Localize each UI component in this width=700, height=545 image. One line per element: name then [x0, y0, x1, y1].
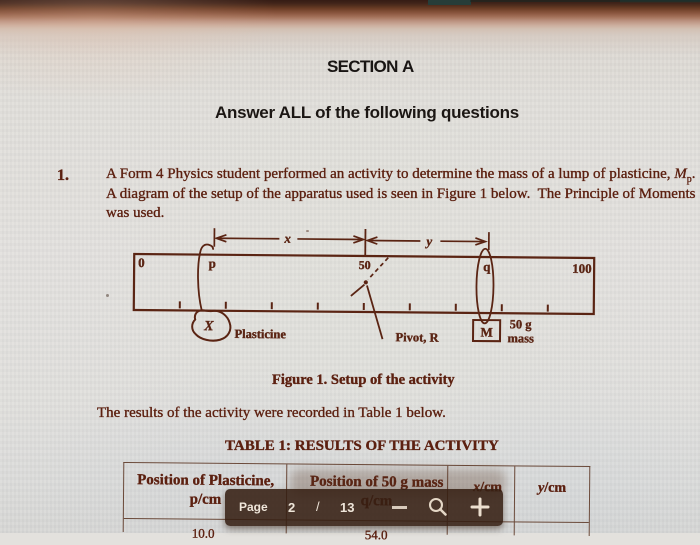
- svg-text:q: q: [483, 259, 491, 274]
- svg-text:M: M: [481, 325, 493, 340]
- svg-text:Pivot, R: Pivot, R: [395, 330, 439, 344]
- svg-text:y: y: [424, 234, 432, 249]
- svg-text:X: X: [203, 319, 214, 334]
- svg-text:x: x: [283, 231, 291, 246]
- svg-text:mass: mass: [507, 331, 534, 345]
- svg-text:0: 0: [138, 255, 145, 270]
- svg-text:Plasticine: Plasticine: [234, 327, 286, 341]
- svg-text:p: p: [209, 256, 216, 271]
- svg-text:50: 50: [359, 258, 371, 272]
- svg-text:100: 100: [572, 261, 592, 276]
- svg-text:50 g: 50 g: [510, 317, 533, 331]
